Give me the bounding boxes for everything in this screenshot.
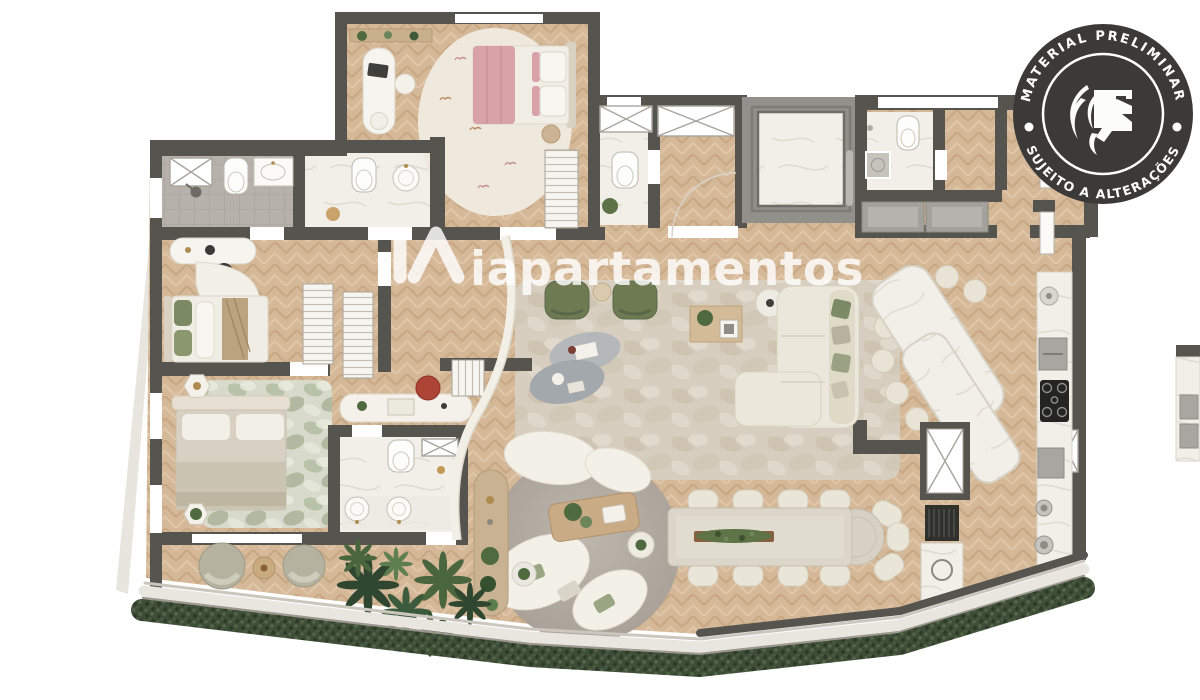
structural-column	[920, 422, 970, 500]
elevator-car-floor	[758, 112, 844, 206]
stool	[326, 207, 340, 221]
master-bedroom	[172, 375, 290, 525]
centerpiece-garland	[696, 529, 772, 543]
desk-stool	[371, 113, 388, 130]
sideboard	[690, 306, 742, 342]
suite1-bed	[473, 42, 576, 128]
wardrobe	[303, 284, 333, 364]
toilet	[612, 152, 638, 188]
suite2-bed	[164, 296, 268, 362]
neighbor-counter-cutoff	[1176, 357, 1200, 461]
toilet	[352, 158, 376, 192]
desk-chair	[395, 74, 415, 94]
laundry-sink	[866, 152, 890, 178]
toilet	[897, 116, 919, 150]
wardrobe	[343, 292, 373, 378]
wardrobe	[452, 360, 484, 396]
watermark: iapartamentos	[400, 233, 864, 297]
hall-cabinet	[1040, 212, 1054, 254]
red-armchair	[416, 376, 440, 400]
appliance	[1038, 448, 1064, 478]
double-sink-left	[345, 497, 369, 521]
floorplan-canvas: iapartamentos MATERIAL PRELIMINAR SUJEIT…	[0, 0, 1200, 700]
elevator-door	[846, 150, 853, 206]
double-sink-right	[387, 497, 411, 521]
suite1-pouf	[542, 125, 560, 143]
kitchen-counter-right	[1035, 272, 1072, 578]
suite1-closet	[545, 150, 578, 228]
preliminary-stamp: MATERIAL PRELIMINAR SUJEITO A ALTERAÇÕES	[1013, 24, 1193, 204]
master-bed	[172, 396, 290, 510]
wine-cooler	[925, 505, 959, 541]
round-basin	[393, 165, 419, 191]
toilet	[388, 440, 414, 472]
cooktop	[1040, 380, 1069, 422]
plant	[602, 198, 618, 214]
toilet	[224, 158, 248, 194]
watermark-text: iapartamentos	[470, 242, 864, 297]
floorplan-svg: iapartamentos MATERIAL PRELIMINAR SUJEIT…	[0, 0, 1200, 700]
